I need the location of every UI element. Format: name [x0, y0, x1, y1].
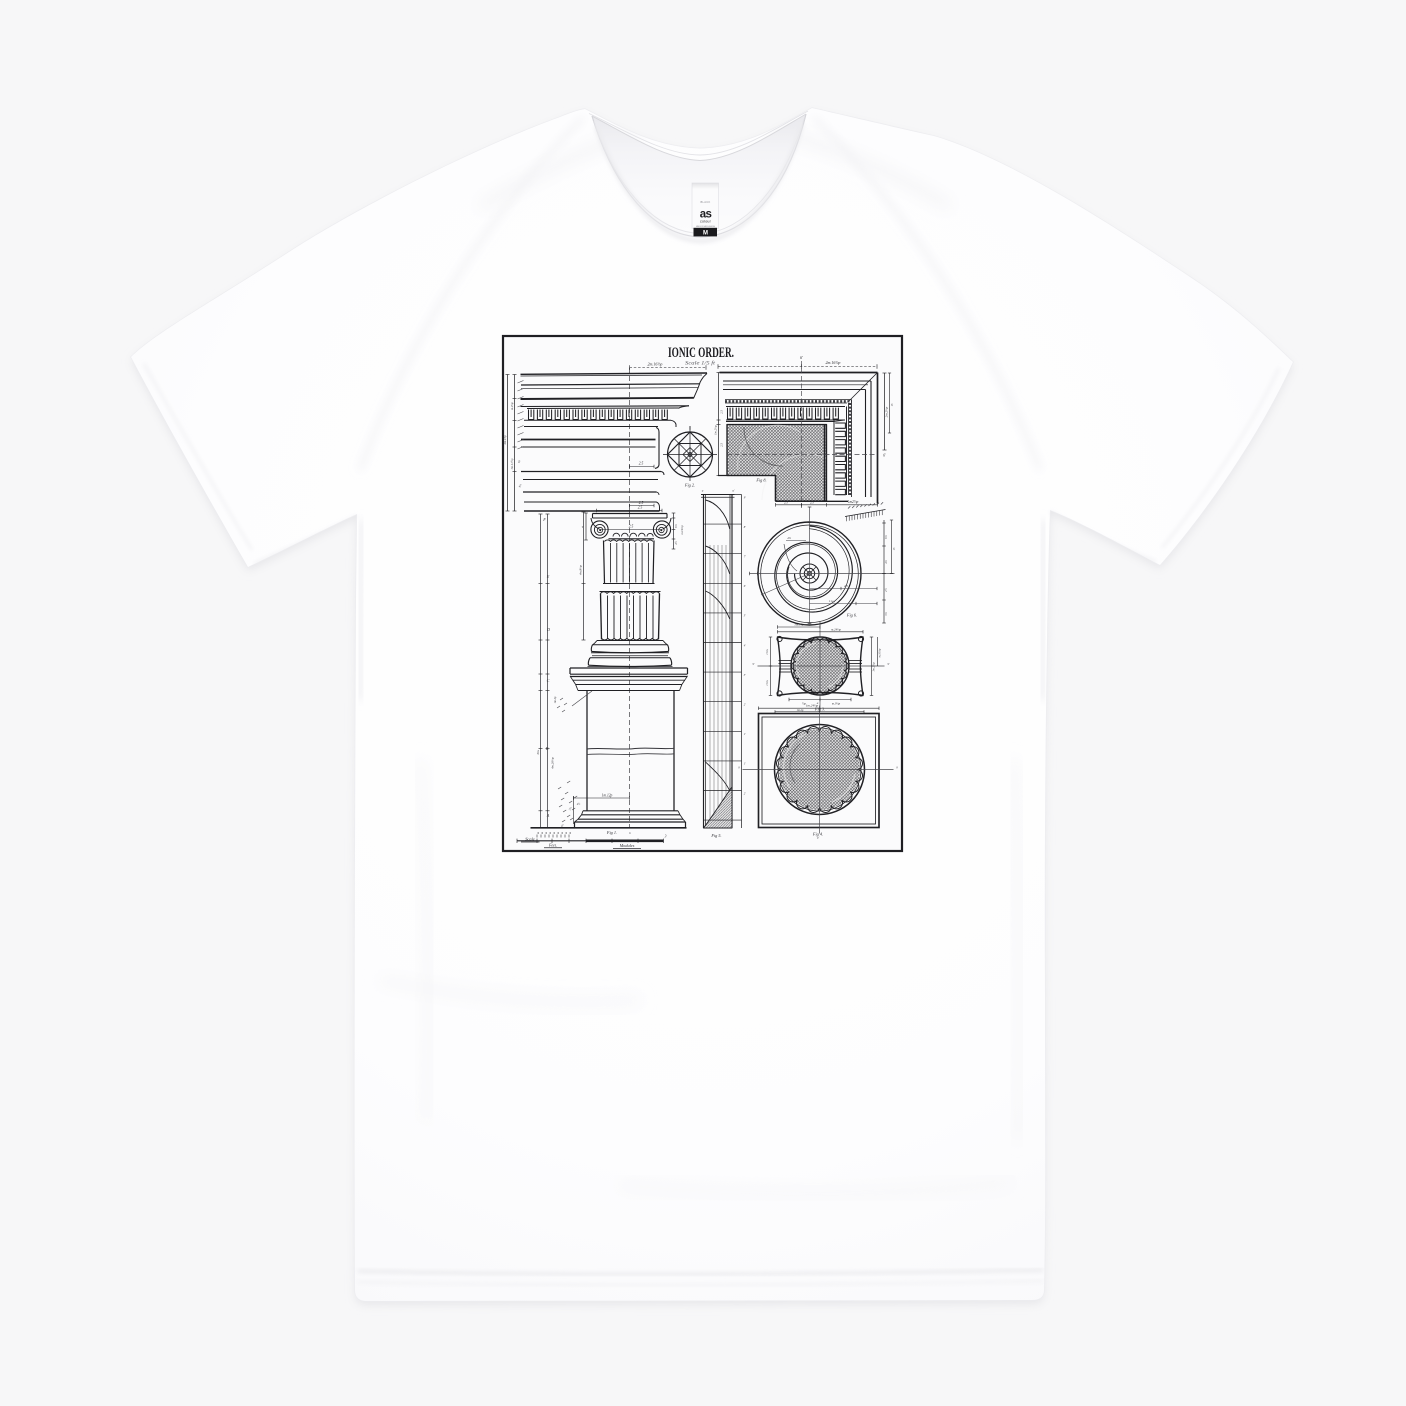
svg-text:1m.12½p: 1m.12½p [510, 458, 514, 470]
svg-text:4m.8⅓p: 4m.8⅓p [578, 564, 582, 575]
svg-text:2.5: 2.5 [844, 584, 848, 588]
svg-text:4': 4' [744, 643, 746, 647]
svg-text:1m.12p: 1m.12p [602, 793, 613, 797]
svg-text:3: 3 [665, 835, 667, 839]
svg-text:F: F [542, 517, 546, 522]
svg-text:2m.16⅓p: 2m.16⅓p [648, 362, 663, 367]
svg-text:9': 9' [744, 495, 746, 499]
svg-text:2.5: 2.5 [720, 410, 724, 414]
svg-text:BLACK: BLACK [700, 200, 710, 204]
svg-text:1m.2⅓p: 1m.2⅓p [872, 662, 876, 672]
svg-text:6': 6' [800, 355, 803, 360]
svg-text:2.5: 2.5 [720, 443, 724, 447]
svg-text:A: A [546, 813, 550, 818]
svg-text:Modules: Modules [619, 843, 635, 848]
svg-text:2.5: 2.5 [810, 500, 814, 504]
svg-text:B: B [546, 746, 549, 751]
svg-text:E: E [546, 574, 550, 579]
svg-text:Fig 8.: Fig 8. [755, 478, 766, 483]
svg-text:6': 6' [883, 454, 886, 458]
svg-text:2.5: 2.5 [629, 525, 634, 529]
svg-text:m.2⅓p: m.2⅓p [511, 402, 514, 410]
svg-text:5': 5' [744, 614, 746, 618]
svg-text:4m.15p: 4m.15p [503, 435, 507, 445]
svg-text:1m.2p: 1m.2p [554, 696, 557, 704]
svg-text:Fig 1.: Fig 1. [606, 830, 617, 835]
svg-text:2.5: 2.5 [639, 501, 644, 505]
svg-text:1m2⅓p: 1m2⅓p [848, 500, 859, 504]
svg-text:IONIC ORDER.: IONIC ORDER. [668, 345, 734, 361]
svg-text:m.24⅓p: m.24⅓p [831, 628, 841, 632]
svg-text:1⅓¾: 1⅓¾ [766, 648, 769, 654]
svg-text:1¾⁄₁₅: 1¾⁄₁₅ [829, 600, 835, 603]
svg-text:Fig 5.: Fig 5. [710, 833, 721, 838]
svg-text:Fig 4.: Fig 4. [812, 832, 823, 837]
svg-text:2': 2' [744, 703, 746, 707]
svg-text:2m.2⅓p: 2m.2⅓p [884, 406, 888, 417]
svg-text:7': 7' [744, 555, 746, 559]
svg-text:Fig 2.: Fig 2. [684, 483, 695, 488]
svg-text:M: M [703, 231, 708, 237]
svg-text:9': 9' [752, 662, 754, 666]
svg-text:Feet.: Feet. [548, 843, 557, 848]
svg-text:2': 2' [744, 791, 746, 795]
svg-text:2.5: 2.5 [638, 506, 643, 510]
svg-text:Fig 6.: Fig 6. [846, 613, 857, 618]
svg-text:1⅓¾: 1⅓¾ [766, 679, 769, 685]
svg-text:2m.16⅓p: 2m.16⅓p [826, 360, 841, 365]
svg-text:1m.2⅓p: 1m.2⅓p [713, 425, 717, 435]
svg-text:1m.2p: 1m.2p [797, 709, 804, 712]
svg-text:1': 1' [744, 762, 746, 766]
svg-text:3': 3' [744, 673, 746, 677]
svg-text:1': 1' [744, 732, 746, 736]
svg-text:m.14⅔p: m.14⅔p [680, 525, 684, 535]
svg-text:C: C [547, 678, 550, 683]
svg-text:m.3⅓p: m.3⅓p [832, 702, 841, 706]
svg-text:a': a' [732, 489, 735, 493]
svg-text:2.5: 2.5 [784, 500, 788, 504]
svg-text:D: D [546, 627, 550, 632]
svg-text:Scale 1/5 ft: Scale 1/5 ft [685, 362, 716, 367]
svg-text:MADE IN BANGLADESH: MADE IN BANGLADESH [696, 225, 716, 228]
svg-text:6': 6' [744, 584, 746, 588]
svg-text:1m.24⅓p: 1m.24⅓p [806, 704, 819, 708]
svg-text:1m.11p: 1m.11p [794, 622, 804, 626]
svg-text:colour: colour [700, 220, 712, 224]
svg-text:6m.: 6m. [536, 749, 540, 754]
svg-text:m.10⅓p: m.10⅓p [879, 648, 882, 657]
svg-text:8': 8' [744, 525, 746, 529]
svg-text:9': 9' [887, 662, 889, 666]
svg-text:4m.26⅓p: 4m.26⅓p [551, 757, 555, 769]
svg-text:2.5: 2.5 [639, 462, 644, 466]
